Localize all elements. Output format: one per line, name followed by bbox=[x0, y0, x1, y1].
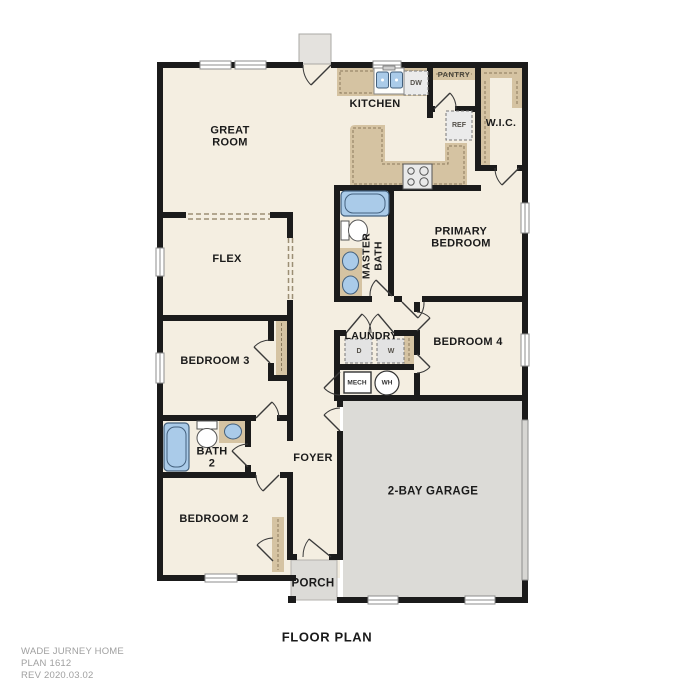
builder-name: WADE JURNEY HOME bbox=[21, 646, 124, 658]
window-bedroom2 bbox=[205, 574, 237, 582]
room-label-bedroom2: BEDROOM 2 bbox=[179, 513, 248, 525]
room-label-pantry: PANTRY bbox=[438, 71, 470, 79]
label-mechanical: MECH bbox=[347, 379, 366, 386]
label-dryer: D bbox=[356, 348, 361, 356]
label-water-heater: WH bbox=[382, 379, 393, 386]
room-label-bedroom3: BEDROOM 3 bbox=[180, 355, 249, 367]
garage-door-1 bbox=[368, 596, 398, 604]
room-label-bath2: BATH 2 bbox=[192, 446, 232, 471]
room-label-great-room: GREAT ROOM bbox=[201, 125, 259, 150]
garage-door-2 bbox=[465, 596, 495, 604]
window-bedroom3 bbox=[156, 353, 164, 383]
room-label-kitchen: KITCHEN bbox=[350, 98, 401, 110]
master-sink-1 bbox=[343, 252, 359, 270]
drawing-title: FLOOR PLAN bbox=[282, 631, 373, 646]
garage-side-panel bbox=[522, 420, 528, 580]
rear-stoop bbox=[299, 34, 331, 64]
room-label-wic: W.I.C. bbox=[486, 118, 516, 130]
master-sink-2 bbox=[343, 276, 359, 294]
floor-plan-drawing bbox=[0, 0, 687, 687]
floor-plan-page: GREAT ROOM KITCHEN PANTRY W.I.C. PRIMARY… bbox=[0, 0, 687, 687]
window-great-room-1 bbox=[200, 61, 231, 69]
window-flex bbox=[156, 248, 164, 276]
garage-floor bbox=[343, 401, 522, 597]
label-dishwasher: DW bbox=[410, 80, 422, 88]
room-label-bedroom4: BEDROOM 4 bbox=[433, 336, 502, 348]
room-label-laundry: LAUNDRY bbox=[344, 331, 397, 343]
bath2-sink bbox=[225, 424, 242, 439]
room-label-master-bath: MASTER BATH bbox=[361, 225, 385, 287]
bath2-tub bbox=[164, 423, 189, 471]
kitchen-sink bbox=[374, 66, 404, 94]
plan-revision: REV 2020.03.02 bbox=[21, 670, 124, 682]
room-label-garage: 2-BAY GARAGE bbox=[388, 486, 479, 499]
title-block: WADE JURNEY HOME PLAN 1612 REV 2020.03.0… bbox=[21, 646, 124, 682]
master-tub bbox=[341, 191, 389, 216]
window-great-room-2 bbox=[235, 61, 266, 69]
plan-number: PLAN 1612 bbox=[21, 658, 124, 670]
room-label-flex: FLEX bbox=[212, 253, 241, 265]
stove bbox=[403, 164, 432, 189]
room-label-foyer: FOYER bbox=[293, 452, 332, 464]
label-washer: W bbox=[388, 348, 395, 356]
label-refrigerator: REF bbox=[452, 122, 466, 130]
bath2-toilet bbox=[197, 421, 217, 448]
window-bedroom4 bbox=[521, 334, 529, 366]
window-primary-bedroom bbox=[521, 203, 529, 233]
room-label-porch: PORCH bbox=[291, 578, 334, 591]
room-label-primary-bedroom: PRIMARY BEDROOM bbox=[421, 226, 501, 251]
